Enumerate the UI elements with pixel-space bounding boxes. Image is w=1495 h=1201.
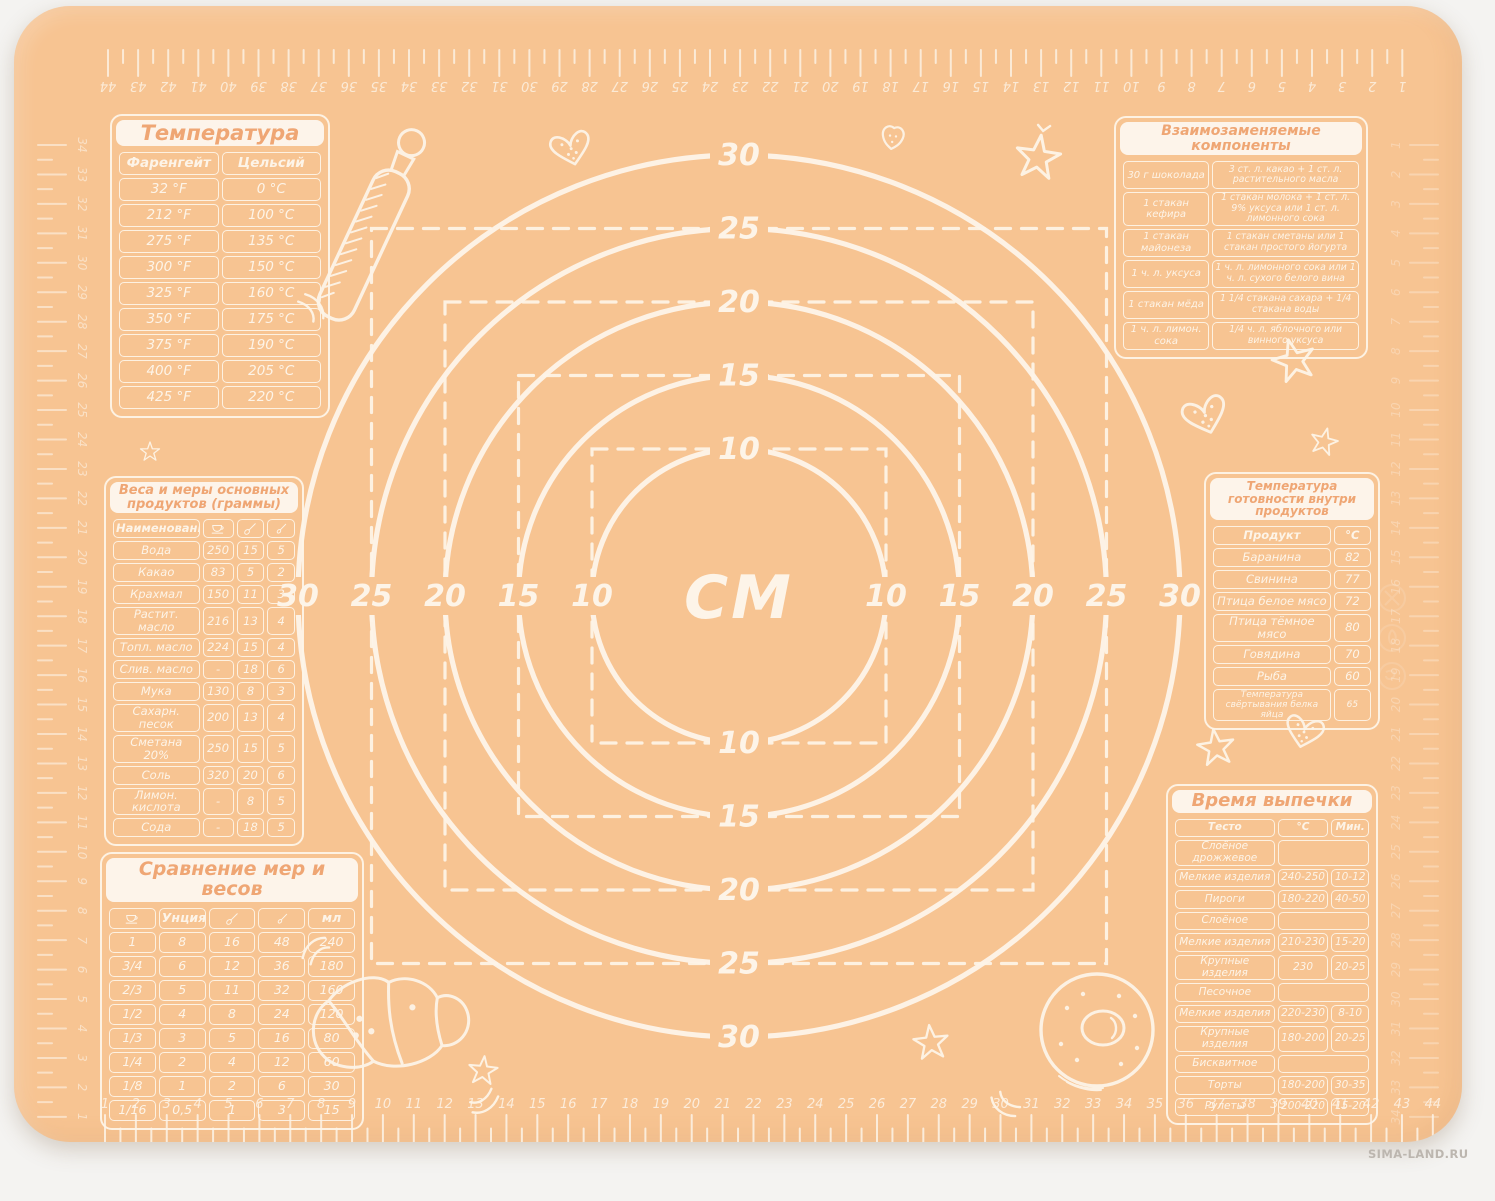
ruler-number: 14 <box>1389 520 1403 535</box>
table-cell: 210-230 <box>1278 933 1329 952</box>
table-cell <box>1278 912 1369 931</box>
table-row: Слив. масло-186 <box>113 660 295 679</box>
table-cell: 15 <box>237 541 265 560</box>
table-cell: 32 <box>258 980 305 1001</box>
table-cell: 15 <box>237 735 265 763</box>
ruler-number: 31 <box>75 226 89 241</box>
ruler-number: 38 <box>280 78 297 93</box>
ruler-number: 7 <box>1217 78 1226 93</box>
table-cell: 4 <box>267 704 295 732</box>
table-cell: 1/2 <box>109 1004 156 1025</box>
table-row: 30 г шоколада3 ст. л. какао + 1 ст. л. р… <box>1123 161 1359 189</box>
teaspoon-icon <box>271 522 291 536</box>
table-cell: 180 <box>308 956 355 977</box>
baking-time-table: Время выпечки Тесто°СМин.Слоёное дрожжев… <box>1166 784 1378 1125</box>
ruler-number: 16 <box>943 78 960 93</box>
table-cell: Птица тёмное мясо <box>1213 614 1331 642</box>
readiness-temperature-table: Температура готовности внутри продуктов … <box>1204 472 1380 730</box>
ruler-number: 16 <box>75 667 89 683</box>
temperature-conversion-table: Температура ФаренгейтЦельсий32 °F0 °C212… <box>110 114 330 418</box>
ruler-number: 19 <box>75 579 89 594</box>
table-cell: 4 <box>267 607 295 635</box>
table-row: Сода-185 <box>113 818 295 837</box>
ruler-number: 20 <box>683 1097 700 1112</box>
measures-comparison-table: Сравнение мер и весов Унциямл1816482403/… <box>100 852 364 1130</box>
ruler-number: 26 <box>75 373 89 389</box>
circle-label-10: 10 <box>865 579 907 614</box>
table-title: Температура <box>116 120 324 146</box>
table-cell: Крахмал <box>113 585 200 604</box>
ruler-number: 30 <box>1389 991 1403 1007</box>
circle-label-20: 20 <box>1012 579 1054 614</box>
ruler-number: 26 <box>1389 873 1403 889</box>
ruler-number: 5 <box>1278 78 1286 93</box>
table-cell: Фаренгейт <box>119 152 219 175</box>
table-cell: 135 °C <box>222 230 322 253</box>
table-cell <box>267 519 295 538</box>
table-cell: 4 <box>159 1004 206 1025</box>
table-cell: 230 <box>1278 955 1329 981</box>
ruler-number: 4 <box>1389 230 1403 238</box>
ruler-number: 24 <box>1389 815 1403 830</box>
table-cell: Торты <box>1175 1076 1275 1095</box>
table-cell: Крупные изделия <box>1175 1026 1275 1052</box>
table-row: Температура свёртывания белка яйца65 <box>1213 689 1371 721</box>
table-cell: 1 <box>209 1100 256 1121</box>
ruler-number: 28 <box>1389 932 1403 948</box>
components-table-body: 30 г шоколада3 ст. л. какао + 1 ст. л. р… <box>1120 158 1362 352</box>
table-cell: Сода <box>113 818 200 837</box>
table-cell: 2 <box>267 563 295 582</box>
ruler-number: 23 <box>776 1097 793 1112</box>
ruler-number: 11 <box>1389 432 1403 447</box>
ruler-number: 25 <box>1389 844 1403 859</box>
ruler-number: 1 <box>1389 141 1403 149</box>
table-cell: 1 стакан сметаны или 1 стакан простого й… <box>1212 229 1359 257</box>
table-row: Пироги180-22040-50 <box>1175 890 1369 909</box>
table-row: 212 °F100 °C <box>119 204 321 227</box>
baking-mat: 1010101015151515202020202525252530303030… <box>14 6 1462 1142</box>
table-row: Птица белое мясо72 <box>1213 592 1371 611</box>
table-row: Сахарн. песок200134 <box>113 704 295 732</box>
photo-watermark: SIMA-LAND.RU <box>1368 1147 1468 1161</box>
ruler-number: 19 <box>653 1097 670 1112</box>
ruler-number: 9 <box>1389 377 1403 385</box>
donut-icon <box>1041 974 1153 1090</box>
ruler-number: 25 <box>838 1097 855 1112</box>
ruler-number: 22 <box>75 491 89 506</box>
table-cell: 1 стакан мёда <box>1123 291 1209 319</box>
ruler-number: 14 <box>75 726 89 741</box>
ruler-number: 29 <box>961 1097 978 1112</box>
table-cell: Слив. масло <box>113 660 200 679</box>
table-cell: 1 стакан майонеза <box>1123 229 1209 257</box>
table-cell: 80 <box>308 1028 355 1049</box>
table-cell: 220-230 <box>1278 1005 1329 1024</box>
ruler-number: 5 <box>1389 259 1403 267</box>
table-cell: 24 <box>258 1004 305 1025</box>
table-cell: 1 ч. л. лимонного сока или 1 ч. л. сухог… <box>1212 260 1359 288</box>
ruler-number: 1 <box>75 1113 89 1121</box>
circle-label-20: 20 <box>718 285 760 320</box>
table-cell: 13 <box>237 704 265 732</box>
table-row: Сметана 20%250155 <box>113 735 295 763</box>
table-cell: 350 °F <box>119 308 219 331</box>
teaspoon-icon <box>272 912 292 926</box>
ruler-number: 32 <box>461 78 478 93</box>
ruler-number: 39 <box>250 78 267 93</box>
circle-size-labels: 1010101015151515202020202525252530303030… <box>269 136 1209 1056</box>
table-cell: 1 ч. л. уксуса <box>1123 260 1209 288</box>
ruler-number: 23 <box>1389 785 1403 800</box>
table-row: 1/160,51315 <box>109 1100 355 1121</box>
table-cell: 1 ч. л. лимон. сока <box>1123 322 1209 350</box>
table-cell: Температура свёртывания белка яйца <box>1213 689 1331 721</box>
table-cell: 1/3 <box>109 1028 156 1049</box>
circle-label-15: 15 <box>939 579 981 614</box>
table-row: 1/24824120 <box>109 1004 355 1025</box>
ruler-number: 30 <box>75 255 89 271</box>
ruler-number: 28 <box>930 1097 947 1112</box>
table-cell <box>203 519 234 538</box>
table-cell: 3 <box>267 585 295 604</box>
table-cell: 1/16 <box>109 1100 156 1121</box>
ruler-number: 21 <box>1389 726 1403 741</box>
ruler-number: 33 <box>1085 1097 1102 1112</box>
table-row: Говядина70 <box>1213 645 1371 664</box>
table-cell: 325 °F <box>119 282 219 305</box>
ruler-number: 25 <box>672 78 689 93</box>
table-cell: 180-200 <box>1278 1076 1329 1095</box>
table-row: 1 ч. л. уксуса1 ч. л. лимонного сока или… <box>1123 260 1359 288</box>
weights-measures-table: Веса и меры основных продуктов (граммы) … <box>104 476 304 846</box>
ruler-number: 12 <box>75 785 89 800</box>
dotted-heart-icon <box>1180 394 1231 439</box>
table-cell: 1 <box>159 1076 206 1097</box>
ruler-number: 10 <box>1389 402 1403 418</box>
table-cell: Птица белое мясо <box>1213 592 1331 611</box>
ruler-number: 34 <box>1116 1097 1133 1112</box>
table-cell: 320 <box>203 766 234 785</box>
table-cell: Свинина <box>1213 570 1331 589</box>
table-cell: 20-25 <box>1331 955 1369 981</box>
ruler-number: 22 <box>745 1097 762 1112</box>
ruler-number: 44 <box>100 78 117 93</box>
ruler-number: 27 <box>1389 903 1403 919</box>
table-row: 1 стакан майонеза1 стакан сметаны или 1 … <box>1123 229 1359 257</box>
table-row: 275 °F135 °C <box>119 230 321 253</box>
table-cell: 2 <box>159 1052 206 1073</box>
table-cell: 30-35 <box>1331 1076 1369 1095</box>
ruler-number: 4 <box>75 1025 89 1033</box>
table-row: 1 стакан мёда1 1/4 стакана сахара + 1/4 … <box>1123 291 1359 319</box>
ruler-number: 15 <box>1389 550 1403 565</box>
table-row: 1 ч. л. лимон. сока1/4 ч. л. яблочного и… <box>1123 322 1359 350</box>
table-cell: 130 <box>203 682 234 701</box>
table-row: Слоёное <box>1175 912 1369 931</box>
cup-icon <box>208 522 228 536</box>
table-cell: - <box>203 818 234 837</box>
circle-label-10: 10 <box>571 579 613 614</box>
table-cell: 3 <box>258 1100 305 1121</box>
ruler-number: 37 <box>310 78 327 93</box>
table-row: Топл. масло224154 <box>113 638 295 657</box>
table-cell: 70 <box>1334 645 1371 664</box>
table-cell: Мелкие изделия <box>1175 933 1275 952</box>
ruler-number: 11 <box>406 1097 423 1112</box>
circle-label-25: 25 <box>718 212 760 247</box>
ruler-number: 13 <box>1033 78 1050 93</box>
photo-background: 1010101015151515202020202525252530303030… <box>0 0 1495 1201</box>
table-row: Баранина82 <box>1213 548 1371 567</box>
table-cell: 8 <box>209 1004 256 1025</box>
star-icon <box>1195 727 1236 766</box>
table-row: Песочное <box>1175 983 1369 1002</box>
table-cell: 0,5 <box>159 1100 206 1121</box>
ruler-number: 4 <box>1308 78 1316 93</box>
table-cell: 15 <box>237 638 265 657</box>
table-row: Свинина77 <box>1213 570 1371 589</box>
ruler-number: 30 <box>521 78 538 93</box>
table-cell: 3/4 <box>109 956 156 977</box>
circle-label-25: 25 <box>351 579 393 614</box>
ruler-number: 7 <box>1389 318 1403 326</box>
cup-icon <box>122 912 142 926</box>
table-cell: 82 <box>1334 548 1371 567</box>
table-row: 32 °F0 °C <box>119 178 321 201</box>
ruler-number: 42 <box>160 78 177 93</box>
accent-arc-icon <box>467 1088 501 1117</box>
ruler-number: 11 <box>1093 78 1110 93</box>
table-cell: 6 <box>267 660 295 679</box>
ruler-number: 2 <box>1368 78 1376 93</box>
table-cell: 300 °F <box>119 256 219 279</box>
table-cell: 120 <box>308 1004 355 1025</box>
table-cell: 10-12 <box>1331 869 1369 888</box>
circle-label-20: 20 <box>424 579 466 614</box>
table-cell: 5 <box>209 1028 256 1049</box>
table-cell: 6 <box>159 956 206 977</box>
table-cell: Слоёное дрожжевое <box>1175 840 1275 866</box>
table-cell: 15-20 <box>1331 1098 1369 1117</box>
table-row: Рулеты200-22015-20 <box>1175 1098 1369 1117</box>
ruler-number: 8 <box>1389 347 1403 355</box>
table-cell: - <box>203 660 234 679</box>
tablespoon-icon <box>222 912 242 926</box>
table-row: 375 °F190 °C <box>119 334 321 357</box>
table-cell: Цельсий <box>222 152 322 175</box>
table-cell: 3 <box>159 1028 206 1049</box>
table-cell: 15-20 <box>1331 933 1369 952</box>
table-cell: 5 <box>267 788 295 816</box>
ruler-number: 32 <box>1054 1097 1071 1112</box>
table-cell: Бисквитное <box>1175 1055 1275 1074</box>
ruler-number: 18 <box>75 609 89 625</box>
table-cell: Тесто <box>1175 819 1275 838</box>
table-row: Лимон. кислота-85 <box>113 788 295 816</box>
ruler-number: 32 <box>1389 1050 1403 1065</box>
star-icon <box>141 442 160 460</box>
ruler-number: 35 <box>371 78 388 93</box>
ruler-number: 23 <box>75 461 89 476</box>
ruler-number: 26 <box>869 1097 886 1112</box>
table-row: 300 °F150 °C <box>119 256 321 279</box>
table-cell: Растит. масло <box>113 607 200 635</box>
ruler-number: 31 <box>1023 1097 1040 1112</box>
ruler-number: 17 <box>591 1097 608 1112</box>
interchangeable-components-table: Взаимозаменяемые компоненты 30 г шоколад… <box>1114 116 1368 359</box>
table-cell: 6 <box>258 1076 305 1097</box>
ruler-number: 21 <box>714 1097 731 1112</box>
table-header-row: ФаренгейтЦельсий <box>119 152 321 175</box>
table-cell: 250 <box>203 541 234 560</box>
table-row: 350 °F175 °C <box>119 308 321 331</box>
ruler-number: 3 <box>75 1054 89 1062</box>
ruler-number: 13 <box>75 756 89 771</box>
star-icon <box>468 1055 499 1085</box>
chevron-icon <box>1037 124 1050 132</box>
table-cell: 30 г шоколада <box>1123 161 1209 189</box>
table-cell: 5 <box>267 541 295 560</box>
ruler-number: 2 <box>75 1084 89 1092</box>
table-cell: Рыба <box>1213 667 1331 686</box>
table-cell: 5 <box>159 980 206 1001</box>
table-cell: 375 °F <box>119 334 219 357</box>
table-header-row: Продукт°С <box>1213 526 1371 545</box>
table-cell: 72 <box>1334 592 1371 611</box>
ruler-number: 19 <box>1389 667 1403 682</box>
table-cell: 1/8 <box>109 1076 156 1097</box>
table-cell: 250 <box>203 735 234 763</box>
table-cell: 175 °C <box>222 308 322 331</box>
ruler-number: 10 <box>75 844 89 860</box>
weights-table-body: НаименованиеВода250155Какао8352Крахмал15… <box>110 516 298 840</box>
table-cell: 65 <box>1334 689 1371 721</box>
table-cell: 160 °C <box>222 282 322 305</box>
table-title: Сравнение мер и весов <box>106 858 358 902</box>
table-cell: 216 <box>203 607 234 635</box>
table-cell: 13 <box>237 607 265 635</box>
ruler-number: 21 <box>75 520 89 535</box>
ruler-number: 13 <box>467 1097 484 1112</box>
table-cell: 8 <box>237 682 265 701</box>
ruler-number: 29 <box>551 78 568 93</box>
ruler-number: 10 <box>1123 78 1140 93</box>
table-cell: Продукт <box>1213 526 1331 545</box>
table-row: 325 °F160 °C <box>119 282 321 305</box>
table-cell: 180-220 <box>1278 890 1329 909</box>
table-row: Соль320206 <box>113 766 295 785</box>
ruler-number: 6 <box>1389 288 1403 296</box>
ruler-number: 44 <box>1425 1097 1442 1112</box>
ruler-number: 27 <box>611 78 628 93</box>
ruler-number: 12 <box>436 1097 453 1112</box>
table-cell: 8-10 <box>1331 1005 1369 1024</box>
table-cell: 6 <box>267 766 295 785</box>
table-cell: 8 <box>237 788 265 816</box>
table-cell: 4 <box>209 1052 256 1073</box>
ruler-number: 26 <box>642 78 659 93</box>
table-row: Крупные изделия180-20020-25 <box>1175 1026 1369 1052</box>
table-cell: 83 <box>203 563 234 582</box>
ruler-number: 27 <box>900 1097 917 1112</box>
ruler-number: 24 <box>702 78 719 93</box>
ruler-number: 15 <box>75 697 89 712</box>
ruler-number: 34 <box>1389 1109 1403 1124</box>
table-cell: 190 °C <box>222 334 322 357</box>
table-cell: Рулеты <box>1175 1098 1275 1117</box>
star-icon <box>1014 132 1063 179</box>
table-cell: 150 <box>203 585 234 604</box>
table-cell <box>258 908 305 929</box>
table-row: Птица тёмное мясо80 <box>1213 614 1371 642</box>
ruler-number: 43 <box>130 78 147 93</box>
table-row: 400 °F205 °C <box>119 360 321 383</box>
table-cell: Наименование <box>113 519 200 538</box>
table-cell: 3 ст. л. какао + 1 ст. л. растительного … <box>1212 161 1359 189</box>
table-cell: 16 <box>258 1028 305 1049</box>
table-cell: 1/4 ч. л. яблочного или винного уксуса <box>1212 322 1359 350</box>
table-cell: 5 <box>237 563 265 582</box>
table-row: Мелкие изделия240-25010-12 <box>1175 869 1369 888</box>
ruler-number: 6 <box>75 966 89 974</box>
ruler-number: 24 <box>807 1097 824 1112</box>
table-title: Температура готовности внутри продуктов <box>1210 478 1374 520</box>
table-cell: 212 °F <box>119 204 219 227</box>
ruler-number: 10 <box>375 1097 392 1112</box>
table-cell: °С <box>1278 819 1329 838</box>
table-cell: 160 <box>308 980 355 1001</box>
ruler-number: 35 <box>1147 1097 1164 1112</box>
table-cell: 30 <box>308 1076 355 1097</box>
table-row: 1/3351680 <box>109 1028 355 1049</box>
table-cell: 3 <box>267 682 295 701</box>
table-cell <box>1278 983 1369 1002</box>
table-cell: 20 <box>237 766 265 785</box>
table-cell: мл <box>308 908 355 929</box>
table-cell: - <box>203 788 234 816</box>
table-row: Мелкие изделия220-2308-10 <box>1175 1005 1369 1024</box>
table-title: Веса и меры основных продуктов (граммы) <box>110 482 298 513</box>
table-row: 1 стакан кефира1 стакан молока + 1 ст. л… <box>1123 192 1359 225</box>
table-cell: 2/3 <box>109 980 156 1001</box>
table-cell: 60 <box>308 1052 355 1073</box>
table-cell: Говядина <box>1213 645 1331 664</box>
circle-label-20: 20 <box>718 873 760 908</box>
circle-label-30: 30 <box>1159 579 1201 614</box>
baking-table-body: Тесто°СМин.Слоёное дрожжевоеМелкие издел… <box>1172 816 1372 1120</box>
ruler-number: 18 <box>622 1097 639 1112</box>
ruler-number: 13 <box>1389 491 1403 506</box>
ruler-number: 16 <box>560 1097 577 1112</box>
ruler-number: 14 <box>1003 78 1020 93</box>
ruler-number: 31 <box>1389 1021 1403 1036</box>
table-cell: 12 <box>209 956 256 977</box>
ruler-number: 12 <box>1063 78 1080 93</box>
table-cell: 205 °C <box>222 360 322 383</box>
ruler-number: 11 <box>75 815 89 830</box>
circle-label-10: 10 <box>718 726 760 761</box>
table-cell: 224 <box>203 638 234 657</box>
table-cell: 400 °F <box>119 360 219 383</box>
ruler-number: 3 <box>1338 78 1346 93</box>
table-cell: 100 °C <box>222 204 322 227</box>
ruler-number: 15 <box>973 78 990 93</box>
temperature-table-body: ФаренгейтЦельсий32 °F0 °C212 °F100 °C275… <box>116 149 324 412</box>
table-cell: 240 <box>308 932 355 953</box>
tablespoon-icon <box>240 522 260 536</box>
table-cell <box>209 908 256 929</box>
